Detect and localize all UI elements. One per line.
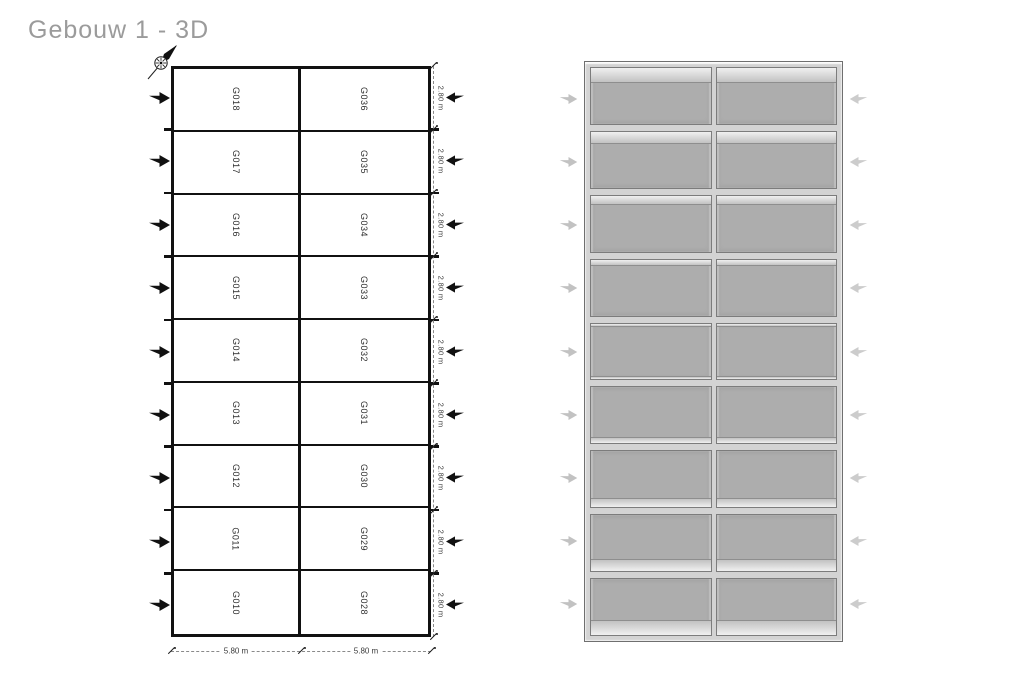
room-cell: G032 — [301, 320, 428, 383]
entry-arrow-icon — [849, 220, 868, 230]
dimension-tick-dot — [436, 506, 438, 508]
inner-wall-face — [591, 437, 711, 443]
page: Gebouw 1 - 3D G018G036G017G035G016G034G0… — [0, 0, 1024, 683]
room-cell: G031 — [301, 383, 428, 446]
unit-grid-3d — [590, 67, 837, 636]
dimension-tick-dot — [436, 62, 438, 64]
door-arrow-icon — [446, 536, 464, 547]
room-label: G036 — [360, 87, 370, 111]
dimension-label-height: 2.80 m — [437, 212, 446, 237]
entry-arrow-icon — [559, 347, 578, 357]
door-arrow-icon — [149, 346, 170, 358]
unit-cell-3d — [716, 323, 838, 381]
room-label: G030 — [360, 464, 370, 488]
room-label: G035 — [360, 150, 370, 174]
room-cell: G017 — [174, 132, 301, 195]
door-arrow-icon — [149, 599, 170, 611]
inner-wall-face — [717, 132, 837, 144]
inner-wall-face — [717, 498, 837, 507]
entry-arrow-icon — [849, 473, 868, 483]
dimension-label-height: 2.80 m — [437, 276, 446, 301]
dimension-tick-dot — [434, 647, 436, 649]
room-cell: G034 — [301, 195, 428, 258]
entry-arrow-icon — [559, 220, 578, 230]
entry-arrow-icon — [849, 347, 868, 357]
door-arrow-icon — [149, 282, 170, 294]
dimension-label-height: 2.80 m — [437, 529, 446, 554]
entry-arrow-icon — [559, 410, 578, 420]
unit-cell-3d — [590, 131, 712, 189]
inner-wall-face — [591, 68, 711, 83]
inner-wall-face — [717, 620, 837, 635]
wall-tick — [164, 319, 172, 322]
room-cell: G011 — [174, 508, 301, 571]
inner-wall-face — [717, 437, 837, 443]
door-arrow-icon — [446, 599, 464, 610]
dimension-label-height: 2.80 m — [437, 339, 446, 364]
entry-arrow-icon — [559, 283, 578, 293]
door-arrow-icon — [446, 409, 464, 420]
wall-tick — [164, 128, 172, 131]
inner-wall-face — [591, 620, 711, 635]
unit-cell-3d — [716, 259, 838, 317]
room-label: G032 — [360, 338, 370, 362]
room-label: G033 — [360, 276, 370, 300]
wall-tick — [164, 445, 172, 448]
inner-wall-face — [591, 498, 711, 507]
room-cell: G015 — [174, 257, 301, 320]
wall-tick — [164, 572, 172, 575]
dimension-tick-dot — [436, 570, 438, 572]
dimension-tick-dot — [436, 443, 438, 445]
inner-wall-face — [591, 324, 711, 327]
door-arrow-icon — [149, 472, 170, 484]
dimension-label-width: 5.80 m — [351, 647, 381, 656]
unit-cell-3d — [590, 514, 712, 572]
dimension-label-height: 2.80 m — [437, 466, 446, 491]
inner-wall-face — [717, 260, 837, 266]
unit-cell-3d — [716, 386, 838, 444]
door-arrow-icon — [446, 92, 464, 103]
room-label: G017 — [231, 150, 241, 174]
dimension-tick-dot — [436, 379, 438, 381]
entry-arrow-icon — [559, 94, 578, 104]
room-label: G016 — [231, 213, 241, 237]
entry-arrow-icon — [849, 599, 868, 609]
door-arrow-icon — [149, 409, 170, 421]
unit-cell-3d — [590, 578, 712, 636]
room-cell: G016 — [174, 195, 301, 258]
unit-cell-3d — [590, 450, 712, 508]
unit-cell-3d — [716, 450, 838, 508]
room-label: G014 — [231, 338, 241, 362]
inner-wall-face — [717, 324, 837, 327]
unit-cell-3d — [716, 67, 838, 125]
wall-tick — [164, 509, 172, 512]
unit-cell-3d — [590, 259, 712, 317]
page-title: Gebouw 1 - 3D — [28, 16, 209, 45]
wall-tick — [164, 192, 172, 195]
dimension-label-height: 2.80 m — [437, 593, 446, 618]
room-label: G028 — [360, 591, 370, 615]
door-arrow-icon — [149, 536, 170, 548]
inner-wall-face — [591, 376, 711, 379]
dimension-label-height: 2.80 m — [437, 149, 446, 174]
inner-wall-face — [717, 376, 837, 379]
inner-wall-face — [717, 196, 837, 205]
room-cell: G013 — [174, 383, 301, 446]
room-cell: G014 — [174, 320, 301, 383]
entry-arrow-icon — [559, 536, 578, 546]
door-arrow-icon — [446, 346, 464, 357]
room-cell: G033 — [301, 257, 428, 320]
door-arrow-icon — [446, 219, 464, 230]
wall-tick — [164, 382, 172, 385]
room-label: G010 — [231, 591, 241, 615]
entry-arrow-icon — [849, 157, 868, 167]
room-cell: G030 — [301, 446, 428, 509]
dimension-tick-dot — [436, 316, 438, 318]
unit-cell-3d — [716, 514, 838, 572]
dimension-label-height: 2.80 m — [437, 85, 446, 110]
dimension-tick-dot — [174, 647, 176, 649]
room-label: G012 — [231, 464, 241, 488]
door-arrow-icon — [149, 92, 170, 104]
entry-arrow-icon — [559, 157, 578, 167]
door-arrow-icon — [446, 155, 464, 166]
unit-cell-3d — [716, 195, 838, 253]
room-cell: G010 — [174, 571, 301, 634]
unit-cell-3d — [590, 67, 712, 125]
room-label: G029 — [360, 527, 370, 551]
unit-cell-3d — [590, 195, 712, 253]
entry-arrow-icon — [559, 599, 578, 609]
inner-wall-face — [591, 196, 711, 205]
room-cell: G012 — [174, 446, 301, 509]
entry-arrow-icon — [849, 94, 868, 104]
entry-arrow-icon — [849, 283, 868, 293]
inner-wall-face — [591, 260, 711, 266]
room-label: G011 — [231, 527, 241, 550]
unit-cell-3d — [716, 578, 838, 636]
building-3d-view — [584, 61, 843, 642]
dimension-label-width: 5.80 m — [221, 647, 251, 656]
room-label: G018 — [231, 87, 241, 111]
room-label: G013 — [231, 401, 241, 425]
inner-wall-face — [717, 68, 837, 83]
dimension-label-height: 2.80 m — [437, 403, 446, 428]
room-cell: G036 — [301, 69, 428, 132]
entry-arrow-icon — [849, 410, 868, 420]
door-arrow-icon — [446, 472, 464, 483]
unit-cell-3d — [590, 386, 712, 444]
door-arrow-icon — [149, 219, 170, 231]
room-cell: G028 — [301, 571, 428, 634]
dimension-tick-dot — [436, 633, 438, 635]
dimension-line — [433, 66, 434, 637]
room-label: G034 — [360, 213, 370, 237]
dimension-tick-dot — [304, 647, 306, 649]
unit-cell-3d — [590, 323, 712, 381]
inner-wall-face — [591, 132, 711, 144]
room-cell: G035 — [301, 132, 428, 195]
room-label: G015 — [231, 276, 241, 300]
entry-arrow-icon — [559, 473, 578, 483]
wall-tick — [164, 255, 172, 258]
room-label: G031 — [360, 401, 370, 425]
inner-wall-face — [717, 559, 837, 571]
room-cell: G018 — [174, 69, 301, 132]
door-arrow-icon — [149, 155, 170, 167]
entry-arrow-icon — [849, 536, 868, 546]
dimension-tick-dot — [436, 189, 438, 191]
room-cell: G029 — [301, 508, 428, 571]
floor-plan-grid: G018G036G017G035G016G034G015G033G014G032… — [174, 69, 428, 634]
unit-cell-3d — [716, 131, 838, 189]
door-arrow-icon — [446, 282, 464, 293]
inner-wall-face — [591, 559, 711, 571]
floor-plan: G018G036G017G035G016G034G015G033G014G032… — [171, 66, 431, 637]
